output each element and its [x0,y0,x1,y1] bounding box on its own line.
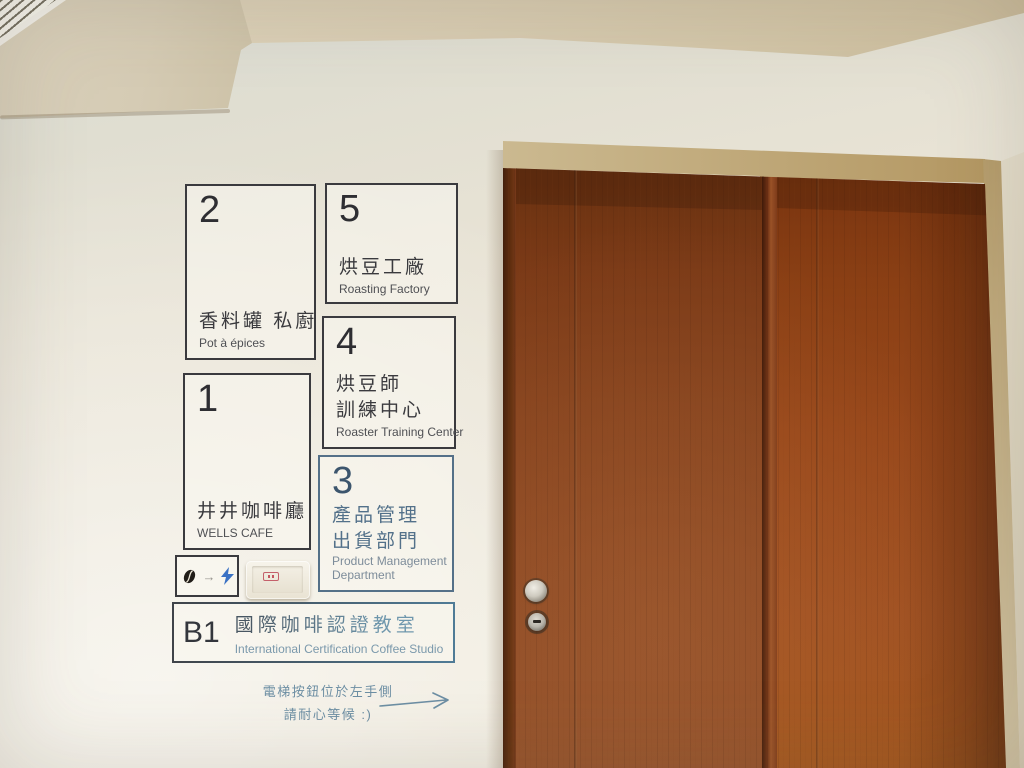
door-peephole [525,580,547,602]
unit-name-en: WELLS CAFE [197,527,307,539]
unit-name-zh: 訓練中心 [336,401,463,420]
floor-number: 2 [199,189,220,232]
switch-rocker [252,566,303,593]
unit-name-en: Roasting Factory [339,283,430,295]
hallway-photo: 2 香料罐 私廚 Pot à épices 5 烘豆工廠 Roasting Fa… [0,0,1024,768]
floor-number: 1 [197,378,218,421]
directory-box-2: 2 香料罐 私廚 Pot à épices [185,184,316,360]
right-arrow-icon: → [203,569,216,584]
unit-name-zh: 烘豆師 [336,375,463,394]
floor-number: B1 [183,616,220,650]
floor-number: 3 [332,460,353,503]
elevator-direction-arrow-icon [378,692,462,712]
directory-box-b1: B1 國際咖啡認證教室 International Certification … [172,602,455,663]
unit-name-en: Pot à épices [199,337,317,349]
wooden-door [0,0,1024,768]
unit-name-zh: 香料罐 私廚 [199,312,317,331]
keyhole-slot [533,620,541,623]
floor-number: 4 [336,321,357,364]
lightning-bolt-icon [221,567,234,585]
switch-red-label [263,572,279,581]
light-switch [246,561,310,599]
unit-name-zh: 出貨部門 [332,532,447,551]
floor-number: 5 [339,188,360,231]
unit-name-zh: 井井咖啡廳 [197,502,307,521]
directory-box-3: 3 產品管理 出貨部門 Product Management Departmen… [318,455,454,592]
unit-name-en: International Certification Coffee Studi… [235,642,444,656]
unit-name-zh: 烘豆工廠 [339,258,430,277]
directory-box-5: 5 烘豆工廠 Roasting Factory [325,183,458,304]
wall-shadow [486,150,503,768]
unit-name-en: Department [332,569,447,581]
door-lock-cylinder [528,613,546,631]
unit-name-en: Roaster Training Center [336,426,463,438]
unit-name-zh: 國際咖啡認證教室 [235,610,444,637]
coffee-bean-icon [181,568,198,585]
directory-box-4: 4 烘豆師 訓練中心 Roaster Training Center [322,316,456,449]
unit-name-zh: 產品管理 [332,506,447,525]
unit-name-en: Product Management [332,555,447,567]
coffee-power-plate: → [175,555,239,597]
wood-grain-texture [503,140,1023,768]
directory-box-1: 1 井井咖啡廳 WELLS CAFE [183,373,311,550]
